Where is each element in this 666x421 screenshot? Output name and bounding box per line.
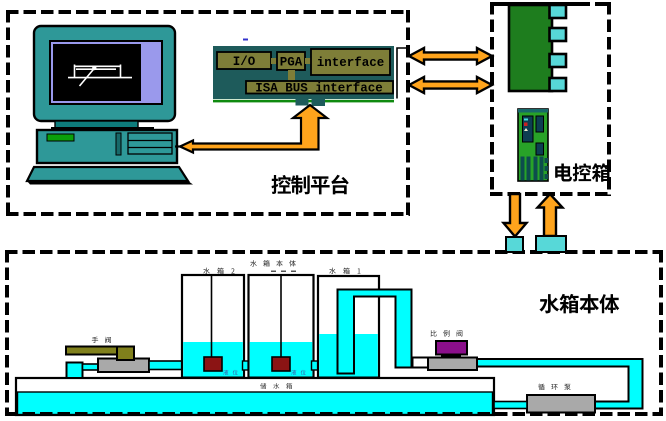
svg-text:PGA: PGA xyxy=(280,56,303,70)
svg-text:I/O: I/O xyxy=(233,55,256,69)
svg-text:ISA BUS interface: ISA BUS interface xyxy=(255,82,383,96)
svg-text:interface: interface xyxy=(317,56,385,70)
